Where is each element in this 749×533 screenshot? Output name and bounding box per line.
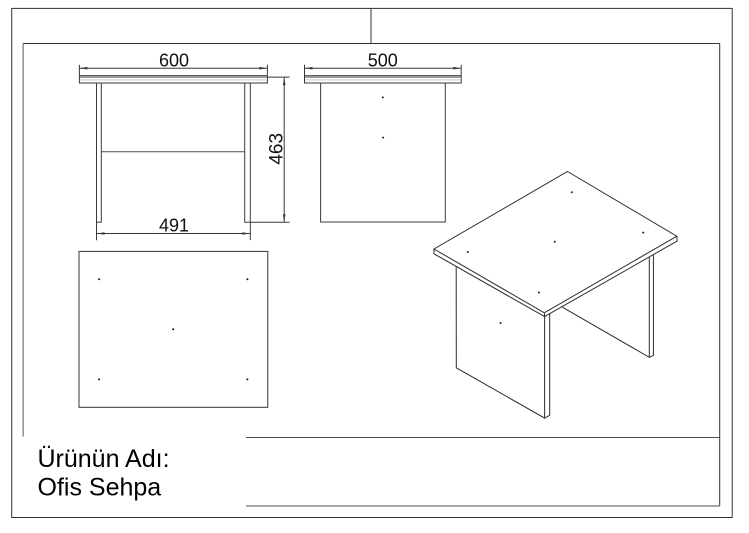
svg-text:Ürünün Adı:: Ürünün Adı: <box>38 445 170 473</box>
svg-text:491: 491 <box>159 216 189 236</box>
svg-text:Ofis Sehpa: Ofis Sehpa <box>38 474 162 502</box>
svg-text:600: 600 <box>159 51 189 71</box>
svg-text:463: 463 <box>267 133 288 165</box>
svg-text:500: 500 <box>368 51 398 71</box>
